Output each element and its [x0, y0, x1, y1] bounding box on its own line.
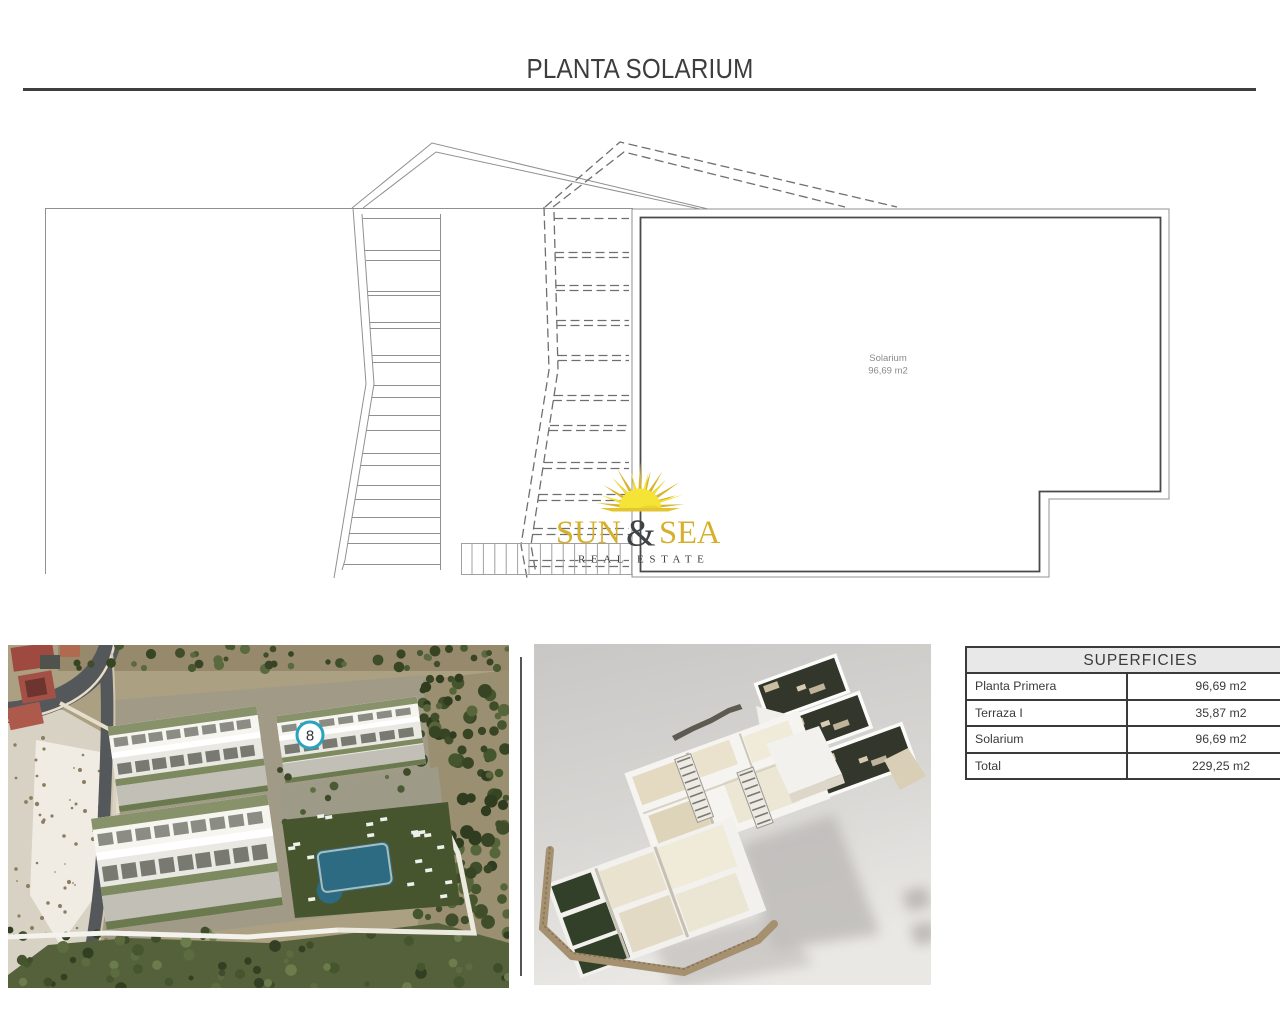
svg-text:&: &: [626, 513, 656, 555]
svg-text:96,69 m2: 96,69 m2: [868, 366, 908, 377]
svg-text:SUN: SUN: [556, 515, 621, 551]
svg-text:8: 8: [306, 728, 314, 745]
svg-text:SEA: SEA: [659, 515, 721, 551]
svg-text:REAL ESTATE: REAL ESTATE: [578, 554, 710, 566]
svg-text:Solarium: Solarium: [869, 353, 907, 364]
